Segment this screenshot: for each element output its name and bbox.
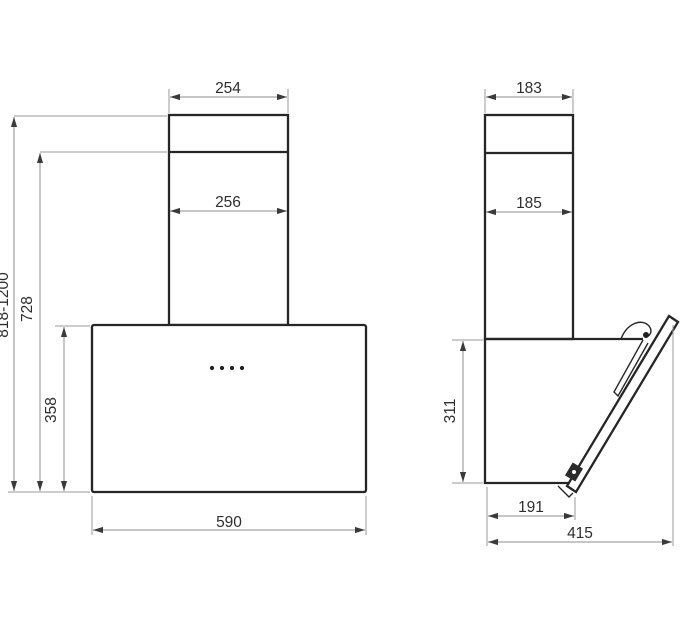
side-lower-depth-label: 185 <box>516 195 542 212</box>
side-total-depth-label: 415 <box>567 525 593 542</box>
side-chimney-outline <box>485 115 573 339</box>
front-body-height-label: 358 <box>43 397 60 423</box>
bottom-hinge-pin <box>572 470 576 474</box>
control-dot <box>230 366 234 370</box>
control-dot <box>210 366 214 370</box>
front-top-width-label: 254 <box>215 80 241 97</box>
front-total-height-label: 818-1200 <box>0 272 12 338</box>
tilted-glass-panel <box>567 316 678 492</box>
front-chimney-outline <box>169 115 288 325</box>
side-body-height-label: 311 <box>442 399 459 424</box>
top-hinge-pin <box>643 332 649 338</box>
cooker-hood-dimension-drawing: 254 256 818-1200 728 358 590 183 185 <box>0 0 680 630</box>
front-body-outline <box>92 325 366 492</box>
side-top-depth-label: 183 <box>516 80 542 97</box>
technical-drawing-canvas: 254 256 818-1200 728 358 590 183 185 <box>0 0 680 630</box>
front-joint-height-label: 728 <box>19 296 36 322</box>
control-dot <box>240 366 244 370</box>
control-dot <box>220 366 224 370</box>
side-view <box>485 115 678 497</box>
front-lower-width-label: 256 <box>215 194 241 211</box>
side-bottom-depth-label: 191 <box>518 499 544 516</box>
front-view <box>92 115 366 492</box>
front-body-width-label: 590 <box>216 514 242 531</box>
